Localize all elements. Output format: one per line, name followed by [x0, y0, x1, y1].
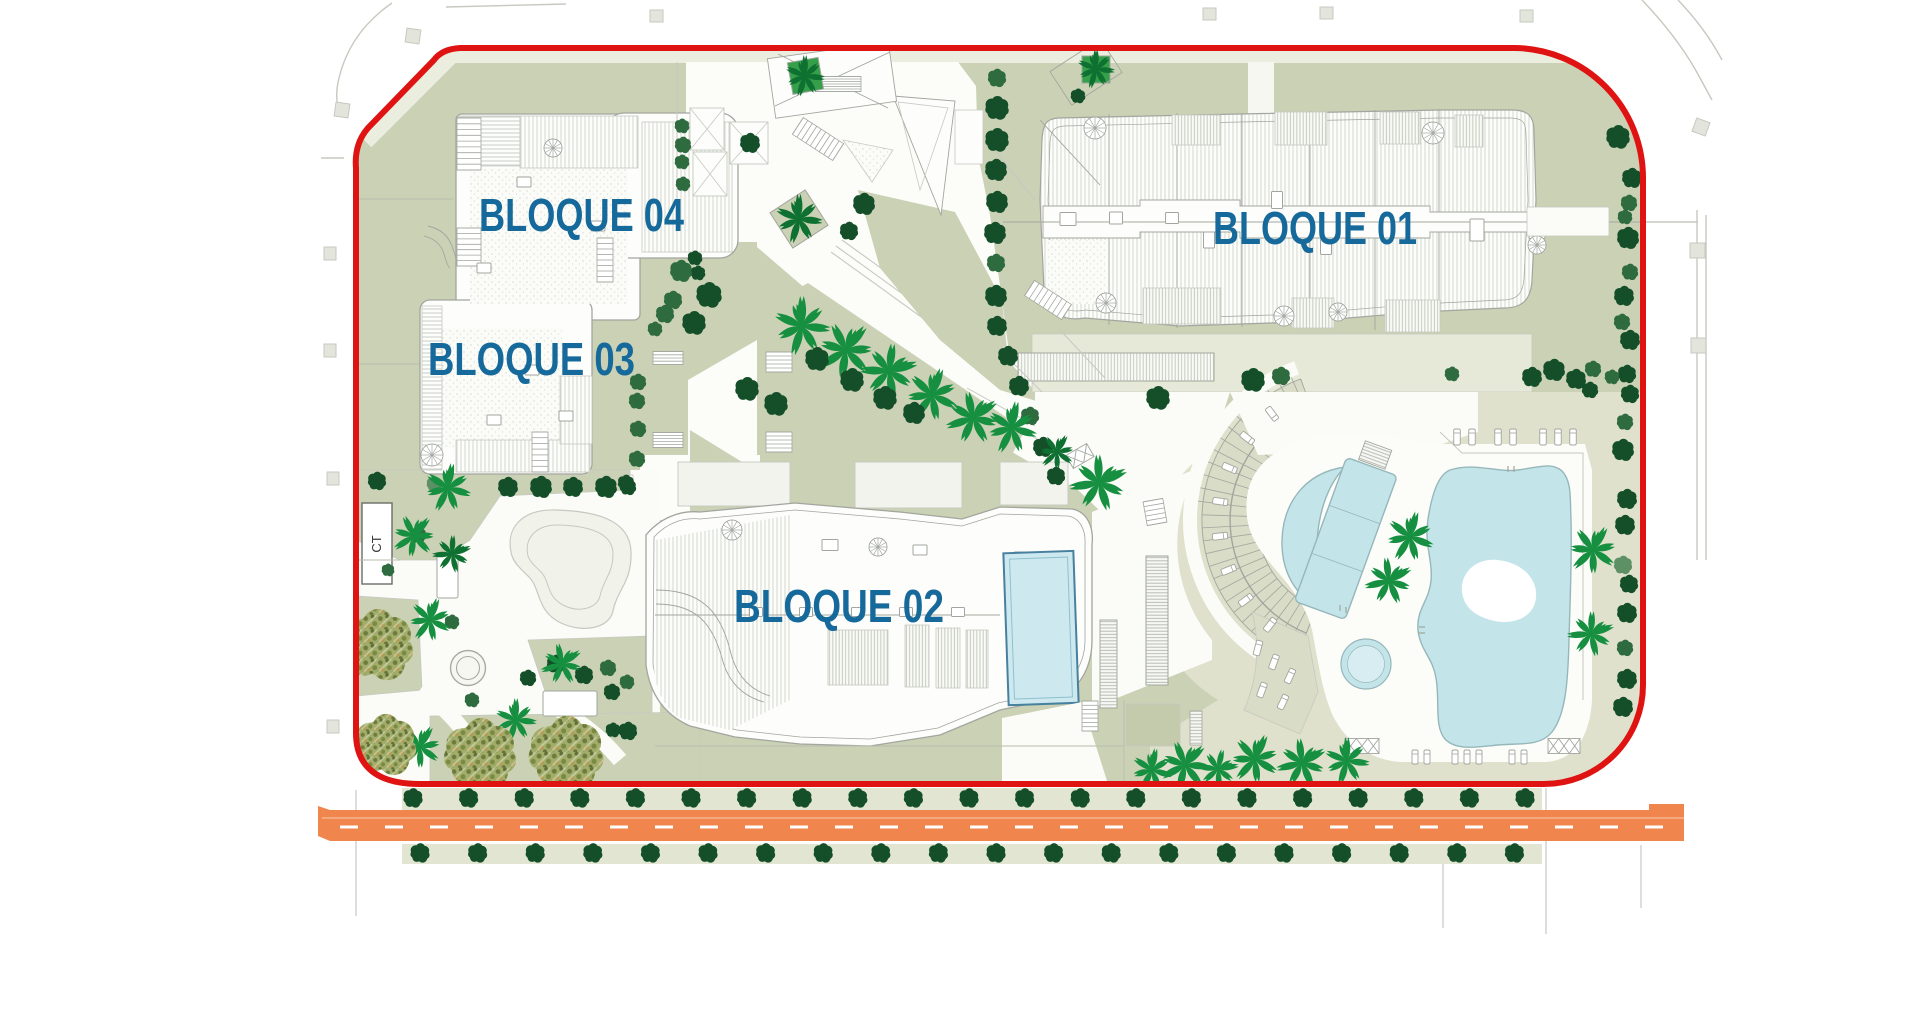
- svg-text:BLOQUE 03: BLOQUE 03: [428, 333, 635, 385]
- svg-text:BLOQUE 04: BLOQUE 04: [479, 189, 684, 241]
- svg-text:CT: CT: [369, 535, 384, 552]
- svg-text:BLOQUE 01: BLOQUE 01: [1213, 202, 1417, 254]
- svg-text:BLOQUE 02: BLOQUE 02: [734, 580, 944, 632]
